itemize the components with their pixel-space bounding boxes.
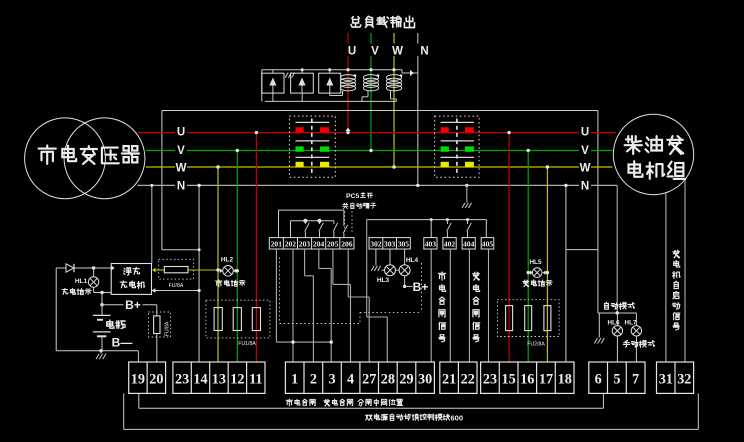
svg-text:202: 202 [285, 240, 297, 249]
svg-text:32: 32 [677, 372, 691, 388]
svg-text:HL7: HL7 [625, 320, 637, 327]
svg-text:29: 29 [399, 372, 413, 388]
svg-text:N: N [581, 181, 589, 193]
svg-text:B+: B+ [125, 298, 141, 312]
svg-text:203: 203 [299, 240, 311, 249]
svg-text:HL3: HL3 [377, 277, 390, 284]
svg-text:30: 30 [418, 372, 432, 388]
svg-text:U: U [348, 46, 356, 58]
svg-text:302: 302 [370, 240, 382, 249]
svg-text:B+: B+ [413, 280, 429, 294]
svg-text:V: V [371, 46, 379, 58]
svg-text:20: 20 [149, 372, 163, 388]
svg-text:28: 28 [381, 372, 395, 388]
svg-text:5: 5 [613, 372, 620, 388]
svg-text:17: 17 [539, 372, 553, 388]
svg-text:13: 13 [212, 372, 226, 388]
svg-text:404: 404 [463, 240, 475, 249]
svg-text:FU/8A: FU/8A [169, 283, 184, 289]
svg-text:206: 206 [341, 240, 353, 249]
svg-text:14: 14 [193, 372, 207, 388]
svg-text:31: 31 [659, 372, 673, 388]
svg-text:600: 600 [451, 413, 464, 422]
svg-text:W: W [176, 163, 187, 175]
svg-text:3: 3 [328, 372, 335, 388]
svg-text:16: 16 [520, 372, 534, 388]
svg-text:N: N [177, 181, 185, 193]
svg-text:W: W [392, 46, 403, 58]
svg-text:U: U [581, 127, 589, 139]
svg-text:201: 201 [271, 240, 283, 249]
svg-text:23: 23 [483, 372, 497, 388]
svg-text:15: 15 [502, 372, 516, 388]
svg-text:W: W [580, 163, 591, 175]
svg-text:HL1: HL1 [75, 278, 88, 285]
svg-text:6: 6 [595, 372, 602, 388]
svg-text:4: 4 [347, 372, 354, 388]
svg-text:7: 7 [632, 372, 639, 388]
svg-text:N: N [420, 46, 428, 58]
svg-text:12: 12 [230, 372, 244, 388]
svg-text:305: 305 [398, 240, 410, 249]
svg-text:402: 402 [444, 240, 456, 249]
svg-text:2: 2 [310, 372, 317, 388]
svg-text:FU1/8A: FU1/8A [238, 341, 256, 347]
svg-text:19: 19 [131, 372, 145, 388]
svg-text:27: 27 [362, 372, 376, 388]
svg-text:205: 205 [327, 240, 339, 249]
svg-text:V: V [177, 145, 185, 157]
svg-text:B—: B— [112, 336, 133, 350]
svg-text:HL6: HL6 [608, 320, 620, 327]
svg-text:U: U [177, 127, 185, 139]
svg-text:PC5: PC5 [346, 193, 359, 200]
svg-text:23: 23 [175, 372, 189, 388]
svg-text:HL5: HL5 [529, 259, 542, 266]
svg-text:22: 22 [461, 372, 475, 388]
svg-text:HL2: HL2 [221, 257, 234, 264]
svg-text:303: 303 [384, 240, 396, 249]
svg-text:1: 1 [291, 372, 298, 388]
svg-text:11: 11 [249, 372, 262, 388]
svg-text:405: 405 [482, 240, 494, 249]
svg-text:FU2/8A: FU2/8A [527, 342, 545, 348]
svg-text:V: V [581, 145, 589, 157]
svg-text:21: 21 [442, 372, 456, 388]
svg-text:204: 204 [313, 240, 325, 249]
svg-text:403: 403 [425, 240, 437, 249]
svg-text:FU/8A: FU/8A [165, 321, 171, 336]
svg-text:18: 18 [558, 372, 572, 388]
svg-text:HL4: HL4 [406, 257, 419, 264]
